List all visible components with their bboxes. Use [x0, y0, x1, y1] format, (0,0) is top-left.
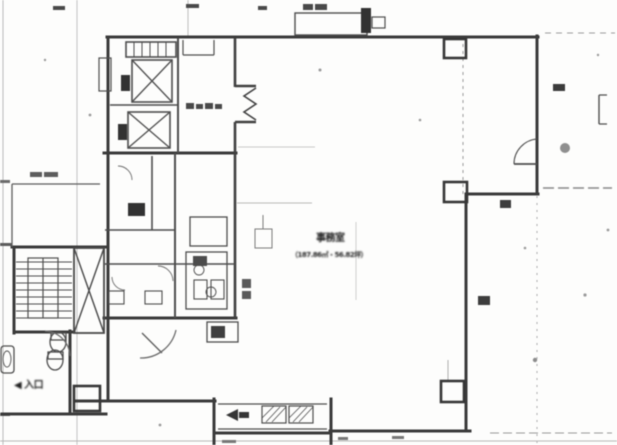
hall-partition-wall — [235, 38, 256, 318]
exterior-walls — [2, 36, 538, 444]
door-swing-icon — [514, 139, 537, 164]
door-swing-icon — [158, 266, 173, 281]
shaft-cross-icon — [74, 248, 104, 333]
urinal-icon — [194, 280, 207, 299]
elevator-block — [99, 38, 222, 153]
side-shaft — [74, 248, 104, 333]
entrance-porch — [218, 404, 327, 429]
door-swing-icon — [140, 330, 176, 358]
sink-icon — [211, 326, 225, 338]
door-swing-icon — [112, 277, 125, 290]
door-swing-icon — [118, 166, 132, 180]
scan-grid-lines — [0, 0, 617, 445]
toilet-bowl-icon — [47, 350, 63, 370]
entrance-arrow-icon — [226, 409, 238, 421]
roof-hatch — [295, 8, 385, 35]
entrance-direction-label: ◀ 入口 — [14, 381, 43, 391]
floor-plan-drawing — [0, 0, 617, 445]
column — [74, 386, 100, 411]
column — [444, 39, 466, 58]
elevator-door-icon — [118, 124, 127, 140]
elevator-shaft-cross-icon — [128, 112, 170, 148]
column — [441, 381, 464, 402]
entrance-lobby — [1, 330, 176, 411]
elevator-shaft-cross-icon — [132, 60, 172, 102]
floor-plan: 事務室 （187.86㎡・56.82坪） ◀ 入口 — [0, 0, 617, 445]
column — [444, 182, 467, 202]
staircase — [16, 258, 72, 318]
office-room-label: 事務室 — [316, 234, 345, 244]
office-area-label: （187.86㎡・56.82坪） — [291, 252, 367, 259]
scan-tick-marks — [0, 4, 404, 443]
elevator-door-icon — [121, 75, 130, 91]
scanned-floor-plan-page: 事務室 （187.86㎡・56.82坪） ◀ 入口 — [0, 0, 617, 445]
side-yard — [12, 184, 100, 247]
fixture-icon — [128, 203, 145, 216]
toilet-block — [105, 153, 272, 342]
